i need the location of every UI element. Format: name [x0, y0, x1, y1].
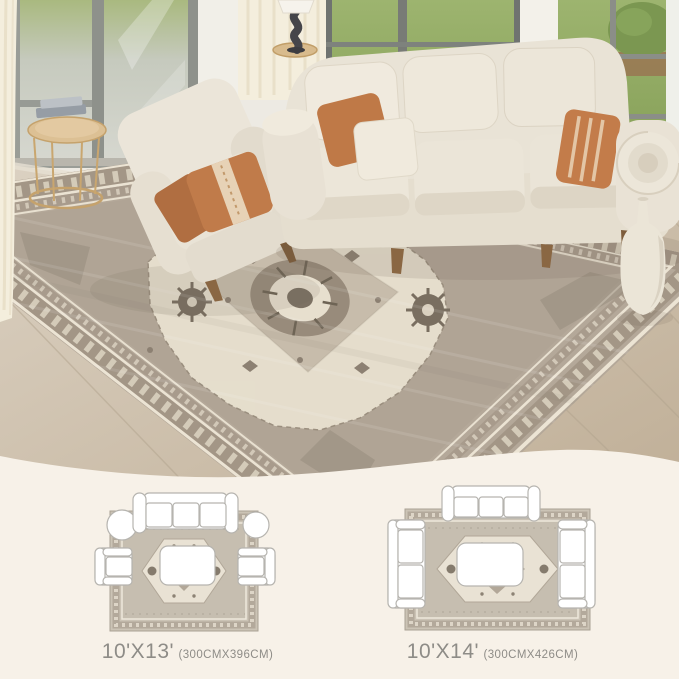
rug-layout-diagram-10x14	[385, 484, 600, 642]
size-cm-10x13: (300CMX396CM)	[179, 649, 274, 661]
diagram-armchair-left	[95, 548, 132, 585]
size-label-10x14: 10'X14' (300CMX426CM)	[385, 640, 600, 664]
diagram-loveseat-left	[388, 520, 425, 608]
size-feet-10x13: 10'X13'	[102, 640, 174, 663]
pillow-white	[353, 117, 419, 181]
diagram-loveseat-right	[558, 520, 595, 608]
diagram-sofa	[442, 486, 540, 521]
diagram-coffee-table	[160, 546, 215, 585]
product-listing-image: 10'X13' (300CMX396CM) 10'X14' (300CMX426…	[0, 0, 679, 679]
diagram-armchair-right	[238, 548, 275, 585]
diagram-coffee-table	[457, 543, 523, 586]
size-feet-10x14: 10'X14'	[407, 640, 479, 663]
size-label-10x13: 10'X13' (300CMX396CM)	[80, 640, 295, 664]
size-cm-10x14: (300CMX426CM)	[484, 649, 579, 661]
pillow-rust-striped	[555, 108, 622, 190]
rug-layout-diagram-10x13	[80, 484, 295, 642]
sofa	[258, 38, 679, 280]
diagram-sofa	[133, 493, 238, 533]
